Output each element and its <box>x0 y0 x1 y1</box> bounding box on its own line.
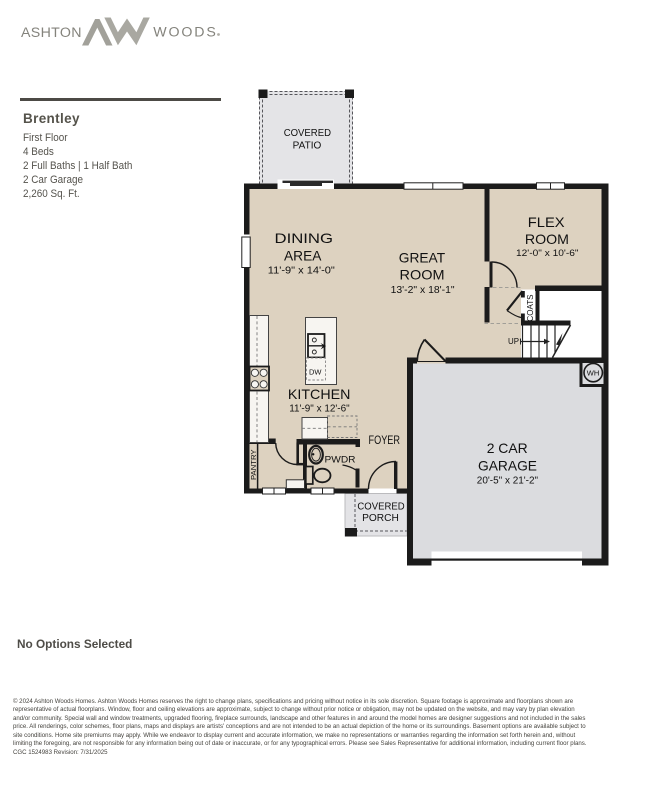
svg-text:PORCH: PORCH <box>362 513 399 524</box>
svg-text:11'-9" x 14'-0": 11'-9" x 14'-0" <box>268 266 335 277</box>
svg-text:DINING: DINING <box>275 230 334 246</box>
svg-text:GARAGE: GARAGE <box>478 457 537 473</box>
svg-text:FLEX: FLEX <box>528 214 565 230</box>
svg-text:PANTRY: PANTRY <box>249 450 258 481</box>
svg-text:2 CAR: 2 CAR <box>487 440 528 456</box>
svg-text:WH: WH <box>587 369 600 378</box>
svg-text:KITCHEN: KITCHEN <box>288 386 351 402</box>
svg-text:COATS: COATS <box>526 295 535 322</box>
svg-text:PATIO: PATIO <box>293 141 322 152</box>
svg-text:FOYER: FOYER <box>369 433 401 447</box>
svg-text:12'-0" x 10'-6": 12'-0" x 10'-6" <box>516 248 579 259</box>
svg-text:ROOM: ROOM <box>400 267 445 283</box>
svg-text:COVERED: COVERED <box>357 502 404 513</box>
svg-text:UP: UP <box>508 337 519 346</box>
svg-text:DW: DW <box>309 368 322 377</box>
svg-text:GREAT: GREAT <box>399 250 446 266</box>
svg-text:COVERED: COVERED <box>284 128 331 139</box>
svg-text:AREA: AREA <box>284 248 322 264</box>
svg-text:11'-9" x 12'-6": 11'-9" x 12'-6" <box>289 404 350 415</box>
svg-text:PWDR: PWDR <box>325 455 357 465</box>
svg-text:20'-5" x 21'-2": 20'-5" x 21'-2" <box>477 476 539 487</box>
svg-text:ROOM: ROOM <box>525 231 569 247</box>
svg-text:13'-2" x 18'-1": 13'-2" x 18'-1" <box>391 285 455 296</box>
